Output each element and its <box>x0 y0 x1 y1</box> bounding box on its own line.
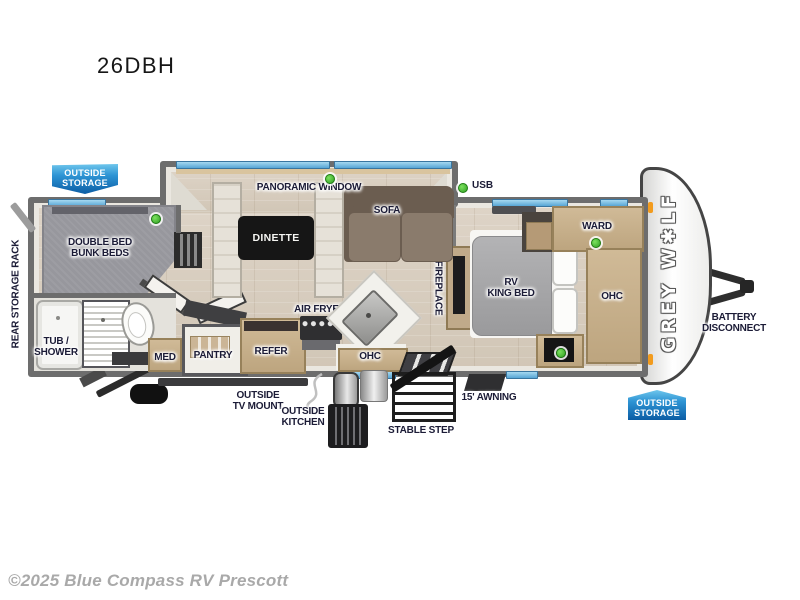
ward-label: WARD <box>582 221 612 232</box>
rear-storage-rack-label: REAR STORAGE RACK <box>11 240 22 349</box>
brand-logo: GREY W✱LF <box>658 191 680 353</box>
bedroom-ohc-label: OHC <box>601 291 623 302</box>
window-bedroom-bottom <box>506 371 538 379</box>
marker-light <box>648 354 653 365</box>
fireplace-label: FIREPLACE <box>433 261 444 316</box>
tub-shower-label: TUB / SHOWER <box>34 336 78 358</box>
med-label: MED <box>154 352 176 363</box>
pantry-label: PANTRY <box>194 350 233 361</box>
kitchen-ohc-label: OHC <box>359 351 381 362</box>
sofa-cushion <box>348 212 401 262</box>
copyright-watermark: ©2025 Blue Compass RV Prescott <box>8 571 288 591</box>
usb-label: USB <box>472 180 493 191</box>
sofa-cushion <box>401 212 453 262</box>
hitch-coupler <box>740 280 754 293</box>
led-light-dot <box>591 238 601 248</box>
refer-label: REFER <box>255 346 288 357</box>
bedroom-ohc-cabinet <box>586 248 642 364</box>
stable-step-label: STABLE STEP <box>388 425 454 436</box>
marker-light <box>648 202 653 213</box>
outside-kitchen-fridge <box>333 372 359 408</box>
pillow <box>552 288 578 334</box>
bunk-bed-edge <box>52 207 148 214</box>
outside-storage-badge-front: OUTSIDE STORAGE <box>628 390 686 420</box>
panoramic-window-label: PANORAMIC WINDOW <box>257 182 361 193</box>
shower-drain <box>101 318 105 322</box>
usb-led-dot <box>458 183 468 193</box>
outside-kitchen-griddle <box>360 370 388 402</box>
rear-storage-box <box>130 384 168 404</box>
fireplace-screen <box>453 256 465 314</box>
sofa-label: SOFA <box>374 205 400 216</box>
led-light-dot <box>556 348 566 358</box>
bathtub <box>36 300 84 370</box>
outside-storage-badge-rear: OUTSIDE STORAGE <box>52 164 118 194</box>
bunk-beds-label: DOUBLE BED BUNK BEDS <box>68 237 132 259</box>
stove-front <box>302 340 340 350</box>
ward-side-cabinet <box>526 222 552 250</box>
king-bed-label: RV KING BED <box>487 277 534 299</box>
led-light-dot <box>151 214 161 224</box>
outside-tv-mount-label: OUTSIDE TV MOUNT <box>233 390 284 412</box>
page-title: 26DBH <box>97 53 175 79</box>
outside-kitchen-grill <box>328 404 368 448</box>
refrigerator-top <box>244 321 298 331</box>
awning-label: 15' AWNING <box>461 392 516 403</box>
awning-bracket <box>464 374 506 391</box>
outside-kitchen-label: OUTSIDE KITCHEN <box>281 406 324 428</box>
window-panoramic-right <box>334 161 452 169</box>
dinette-bench <box>314 182 344 298</box>
window-panoramic-left <box>176 161 330 169</box>
dinette-label: DINETTE <box>252 232 299 244</box>
floorplan-page: 26DBH GREY W✱LF REAR STORAGE RACK DOUBLE… <box>0 0 800 600</box>
sink-faucet <box>366 313 371 318</box>
led-light-dot <box>325 174 335 184</box>
battery-disconnect-label: BATTERY DISCONNECT <box>702 312 766 334</box>
bunk-wall <box>176 205 181 233</box>
bunk-ladder <box>174 232 202 268</box>
awning-arm-rail <box>158 378 308 386</box>
tub-drain <box>56 316 60 320</box>
